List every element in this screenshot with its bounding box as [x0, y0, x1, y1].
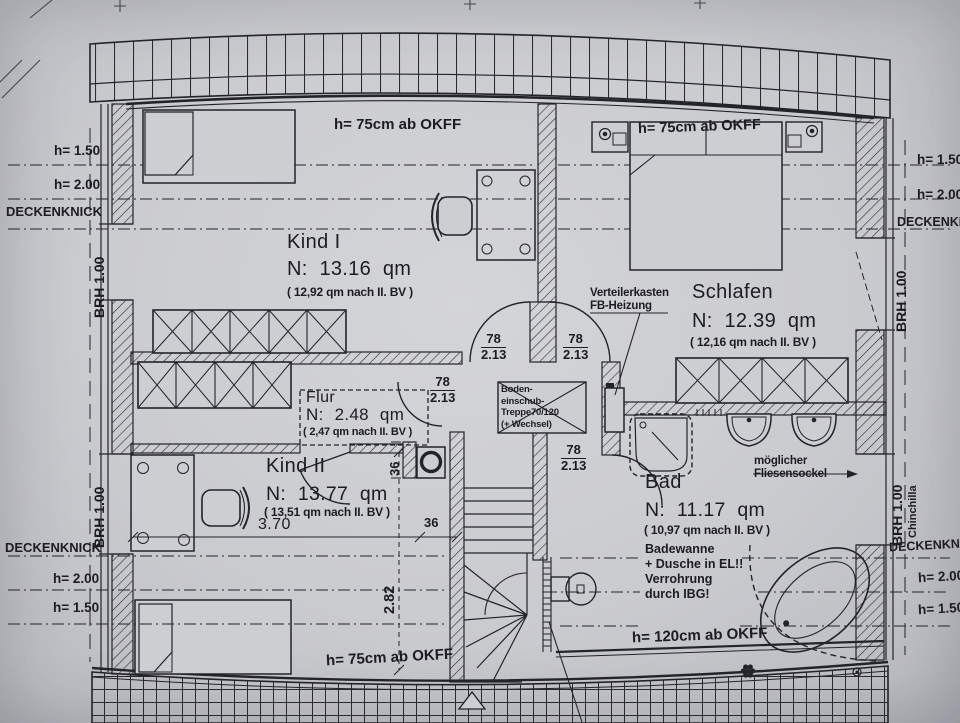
door-height: 2.13	[481, 348, 506, 363]
floorplan-linework	[0, 0, 960, 723]
room-name-kind1: Kind I	[287, 232, 341, 253]
edge-left-h200: h= 2.00	[54, 178, 100, 192]
bed-kind2-icon	[135, 600, 291, 674]
dim-room-width: 3.70	[258, 517, 291, 534]
nightstand-right-icon	[786, 122, 822, 152]
edge-right-h200-bottom: h= 2.00	[918, 569, 960, 586]
edge-right-h150: h= 1.50	[917, 153, 960, 167]
edge-left-brh-top: BRH 1.00	[92, 257, 107, 318]
low-wall	[556, 641, 884, 657]
room-area-alt-flur: ( 2,47 qm nach II. BV )	[303, 427, 412, 439]
floor-plan-photo: h= 75cm ab OKFF h= 75cm ab OKFF h= 75cm …	[0, 0, 960, 723]
edge-right-brh-mid: BRH 1.00	[890, 485, 905, 546]
wardrobe-kind1-icon	[153, 310, 346, 353]
room-area-bad: N: 11.17 qm	[645, 500, 765, 520]
edge-right-h200: h= 2.00	[917, 188, 960, 202]
edge-left-h150-bottom: h= 1.50	[53, 601, 99, 615]
desk-kind1-icon	[477, 170, 535, 260]
edge-right-deckenknick-top: DECKENKNICK	[897, 216, 960, 229]
wardrobe-schlafen-icon	[676, 358, 848, 403]
verteilerkasten-label: Verteilerkasten FB-Heizung	[590, 287, 669, 313]
chimney-box	[417, 447, 445, 478]
edge-right-brh-top: BRH 1.00	[894, 271, 909, 332]
room-area-alt-bad: ( 10,97 qm nach II. BV )	[644, 524, 770, 537]
chair-kind2-icon	[202, 487, 249, 529]
edge-right-h150-bottom: h= 1.50	[918, 601, 960, 618]
height-top-left: h= 75cm ab OKFF	[334, 117, 461, 133]
dim-36-flue: 36	[388, 462, 402, 476]
toilet-icon	[551, 573, 596, 605]
door-width: 78	[481, 332, 506, 348]
edge-left-deckenknick-bottom: DECKENKNICK	[5, 541, 101, 555]
edge-left-h200-bottom: h= 2.00	[53, 572, 99, 586]
bed-kind1-icon	[143, 110, 295, 183]
room-area-alt-schlafen: ( 12,16 qm nach II. BV )	[690, 336, 816, 349]
room-name-bad: Bad	[645, 472, 682, 493]
door-dim-kind1: 78 2.13	[481, 332, 506, 362]
edge-left-deckenknick-top: DECKENKNICK	[6, 205, 102, 219]
sink-icons	[727, 414, 836, 446]
edge-left-h150: h= 1.50	[54, 144, 100, 158]
room-area-kind2: N: 13.77 qm	[266, 484, 388, 504]
chair-kind1-icon	[432, 193, 472, 241]
bad-note-4: durch IBG!	[645, 587, 710, 602]
room-area-alt-kind1: ( 12,92 qm nach II. BV )	[287, 286, 413, 299]
room-name-kind2: Kind II	[266, 456, 326, 477]
nightstand-left-icon	[592, 122, 628, 152]
edge-left-brh-bottom: BRH 1.00	[92, 487, 107, 548]
room-area-kind1: N: 13.16 qm	[287, 259, 411, 280]
bad-note-1: Badewanne	[645, 542, 714, 557]
door-dim-schlafen: 78 2.13	[563, 332, 588, 362]
boden-treppe-label: Boden- einschub- Treppe70/120 (+ Wechsel…	[501, 384, 559, 430]
room-name-schlafen: Schlafen	[692, 282, 773, 303]
dim-282: 2.82	[383, 586, 398, 614]
wardrobe-flur-icon	[138, 362, 291, 408]
bad-note-3: Verrohrung	[645, 572, 712, 587]
fliesensockel-label: möglicher Fliesensockel	[754, 455, 827, 481]
door-dim-bad: 78 2.13	[561, 443, 586, 473]
bed-schlafen-icon	[630, 122, 782, 270]
dim-36-door: 36	[424, 516, 438, 530]
door-dim-flur: 78 2.13	[430, 375, 455, 405]
bad-note-2: + Dusche in EL!!	[645, 557, 743, 572]
edge-right-chinchilla: Chinchilla	[908, 485, 920, 538]
room-area-schlafen: N: 12.39 qm	[692, 311, 816, 332]
room-area-flur: N: 2.48 qm	[306, 406, 404, 424]
